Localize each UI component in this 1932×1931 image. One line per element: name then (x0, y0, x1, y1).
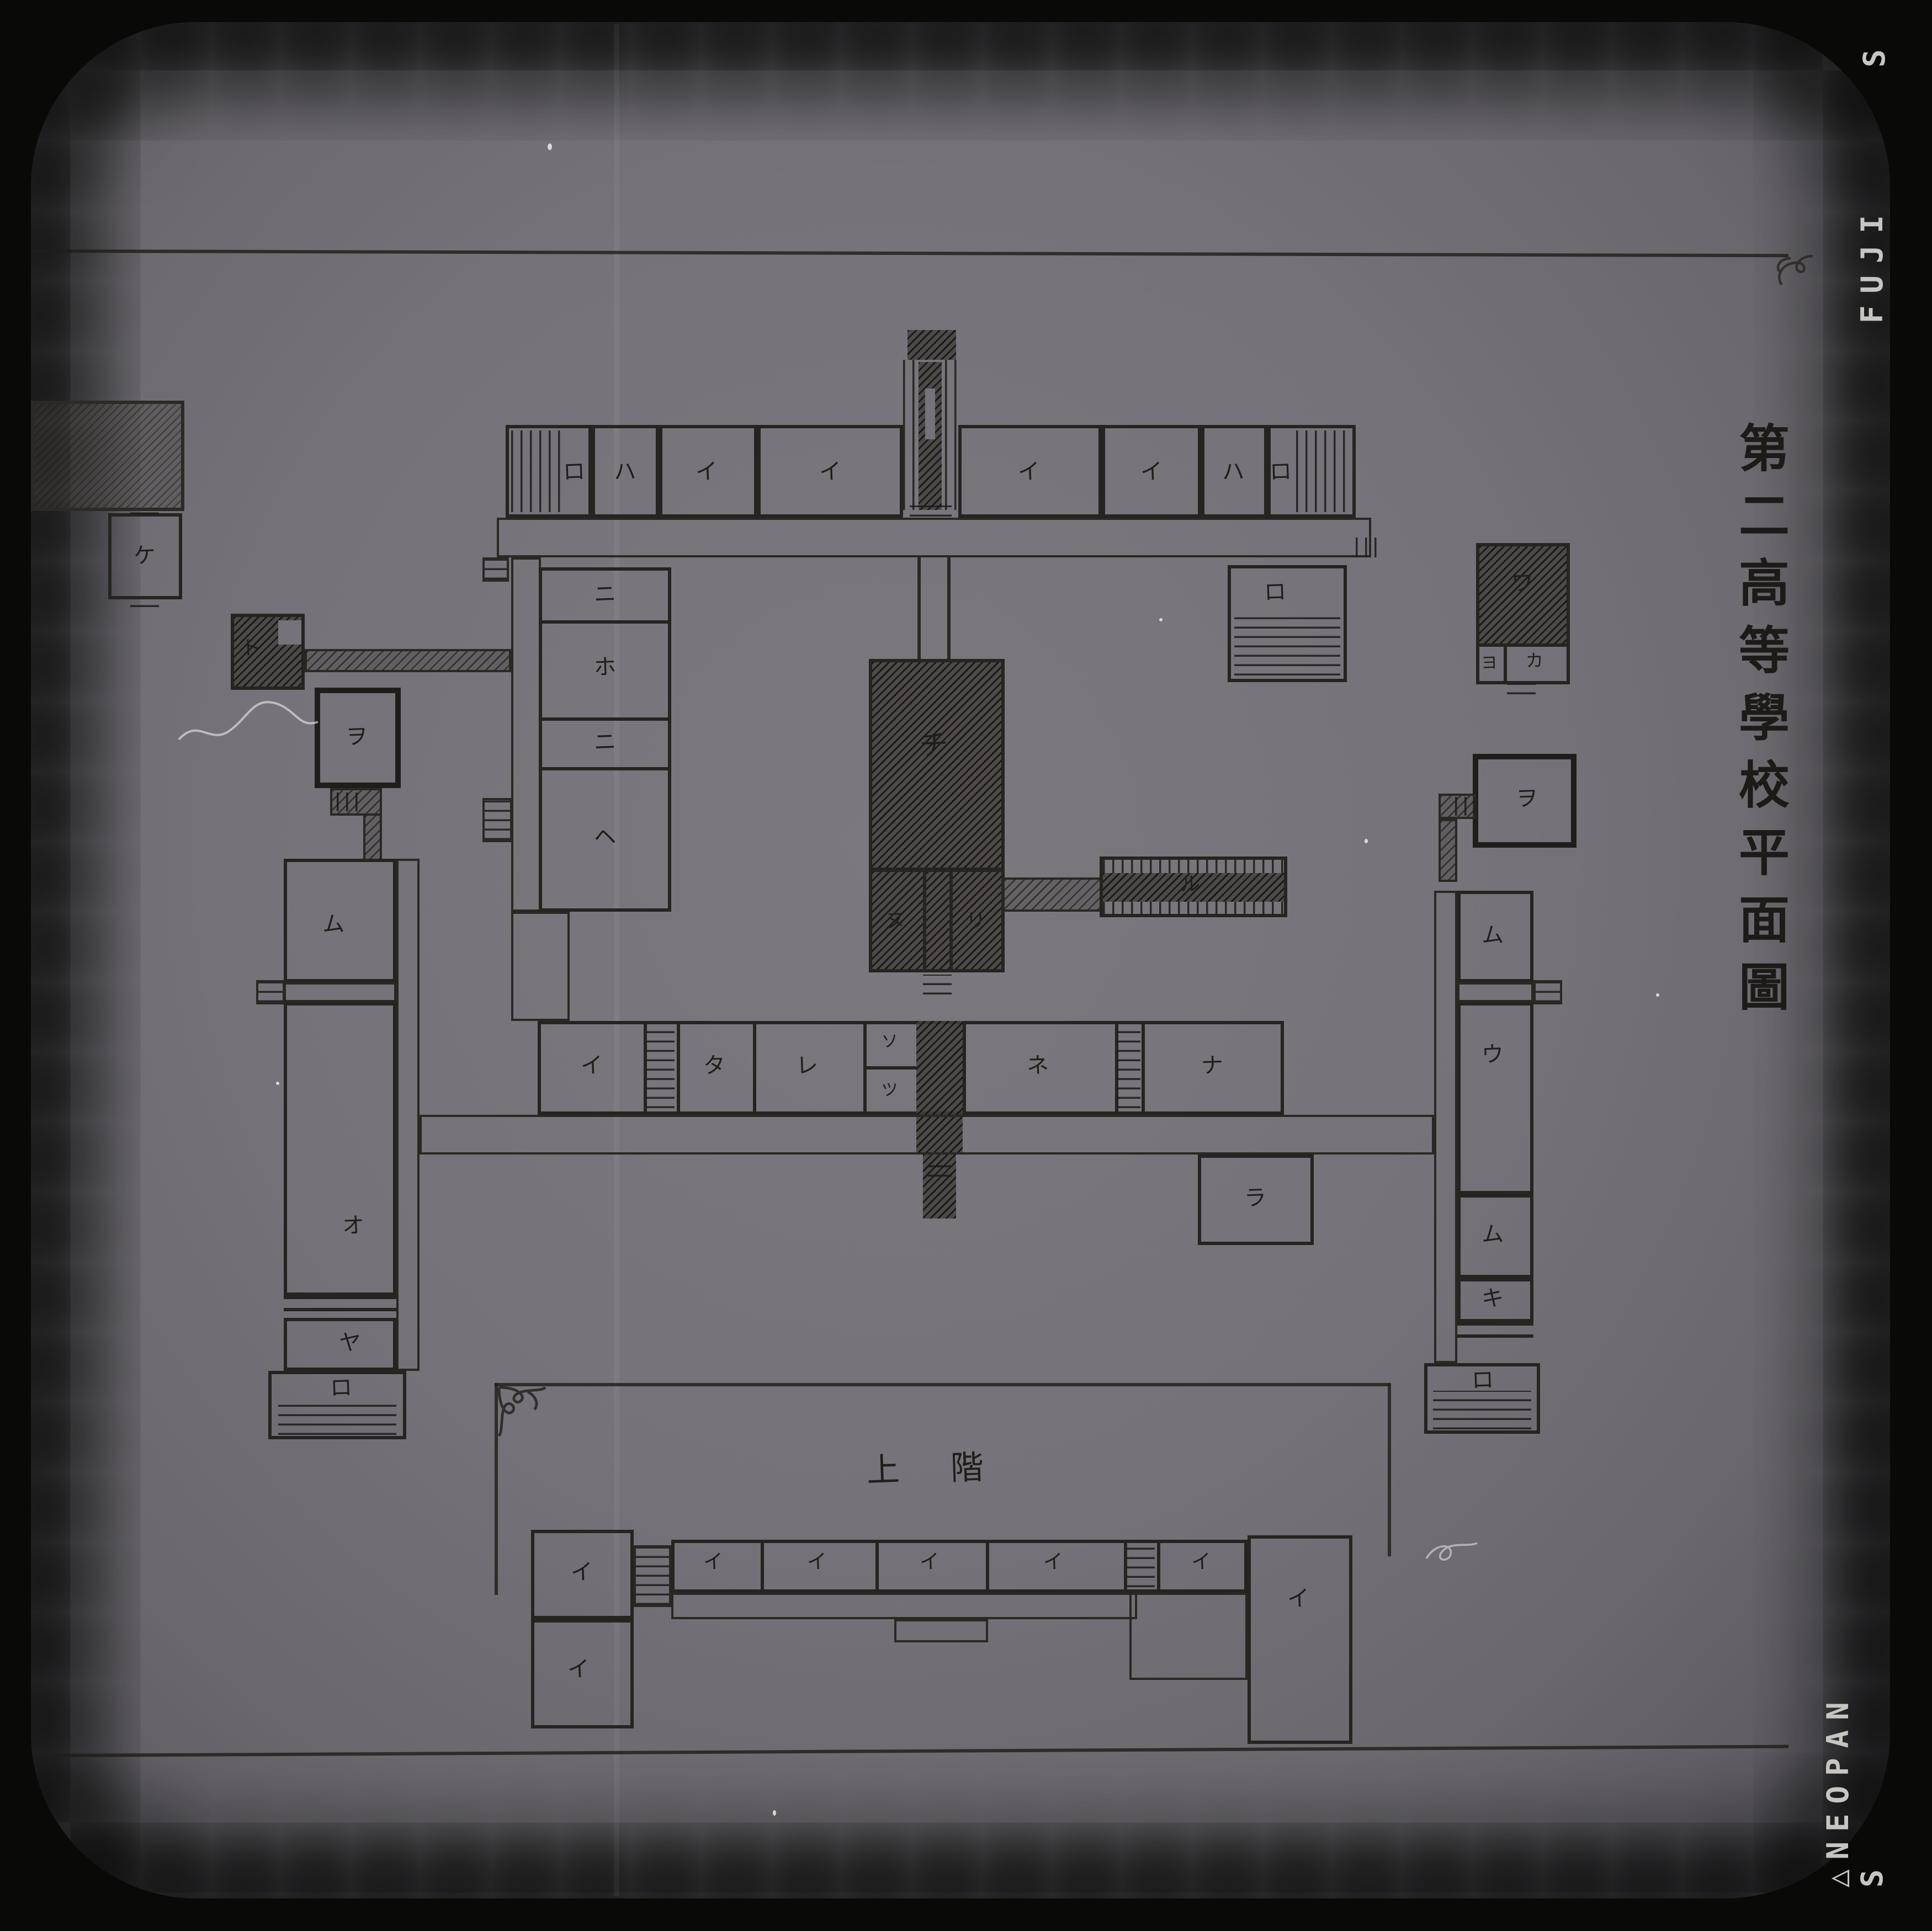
wall-ni-he (539, 767, 671, 770)
stairs-north-right (1356, 538, 1382, 557)
room-label: リ (965, 911, 986, 932)
band-east-2 (1457, 1334, 1533, 1338)
ornament-bottom-box-corner (497, 1385, 565, 1458)
band-west-2 (284, 1308, 396, 1311)
film-stock-text: △NEOPAN S (1822, 1692, 1890, 1887)
corridor-cross-east (1457, 982, 1533, 1002)
corridor-south (671, 1593, 1137, 1619)
wall-south-3 (986, 1540, 989, 1593)
room-label: イ (1043, 1552, 1063, 1573)
room-label: ワ (1511, 571, 1533, 594)
corridor-west-wing (396, 859, 420, 1371)
rooms-south-row (671, 1540, 1248, 1593)
wall-so-tsu (863, 1066, 916, 1070)
connector-wo-west-b (363, 813, 382, 861)
room-label: ハ (1222, 460, 1244, 482)
room-label: チ (919, 731, 949, 761)
stairs-cross-west (256, 980, 285, 1004)
corridor-west-column-lower (511, 912, 570, 1021)
room-label: ロ (330, 1376, 352, 1398)
steps-wo-west (337, 792, 361, 811)
porch-south (894, 1619, 988, 1642)
room-label: オ (342, 1214, 364, 1236)
room-label: レ (795, 1054, 818, 1076)
wall-nu-mid (923, 869, 926, 972)
stairs-west-column (482, 798, 512, 842)
room-label: ヌ (885, 911, 905, 932)
stairs-stripes-northeast-end (1296, 430, 1349, 512)
room-label: ヲ (345, 725, 368, 747)
corridor-middle (420, 1115, 1434, 1155)
room-label: ル (1180, 875, 1200, 895)
wall-mid-5 (963, 1021, 966, 1115)
room-label: イ (703, 1552, 723, 1573)
corridor-west-column (511, 557, 541, 912)
room-label: ロ (1471, 1368, 1494, 1391)
ru-window-band-top (1103, 860, 1284, 873)
room-label: ト (240, 639, 261, 659)
room-label: ハ (613, 460, 636, 482)
room-label: ム (1481, 1222, 1504, 1245)
wall-yo-ka (1504, 643, 1507, 684)
steps-chi-south (923, 975, 952, 994)
room-label: イ (1287, 1587, 1309, 1609)
entrance-side-right (945, 360, 957, 510)
room-o-west (284, 1002, 396, 1296)
wall-south-2 (875, 1540, 879, 1593)
wall-mid-3 (753, 1021, 756, 1115)
room-label: ホ (593, 655, 616, 678)
corridor-south-jog (1129, 1593, 1248, 1680)
wall-mid-ri (949, 869, 953, 972)
band-west-1 (284, 1296, 396, 1299)
ornament-top-right (1764, 254, 1815, 291)
wall-wa-row (1476, 643, 1570, 647)
room-label: ム (1481, 923, 1504, 946)
room-label: ヘ (593, 825, 616, 848)
wall-mid-7 (1142, 1021, 1145, 1115)
room-label: ヨ (1480, 655, 1498, 672)
steps-porch-middle (927, 1159, 952, 1177)
room-label: ム (322, 912, 344, 935)
room-label: ラ (1244, 1186, 1266, 1209)
room-label: ニ (593, 582, 616, 605)
room-label: カ (1525, 652, 1543, 670)
corridor-east-wing (1434, 891, 1457, 1363)
room-label: イ (1191, 1552, 1211, 1573)
scratch-thread (177, 684, 320, 762)
film-negative-photo: ロハイイイイハロニホニヘケトロワヨカチヌリルイタレソツネナラヲムオヤロヲムウムキ… (0, 0, 1932, 1931)
room-label: イ (1140, 460, 1163, 482)
stairs-south-mid (1127, 1545, 1155, 1587)
dust-speck (548, 143, 552, 150)
dust-speck (1159, 618, 1163, 621)
rule-south-box-right (1388, 1383, 1390, 1556)
walkway-wall-left (917, 557, 921, 659)
stairs-stripes-northwest-end (511, 430, 562, 512)
entrance-side-left (903, 360, 915, 510)
hall-chi (869, 659, 1005, 871)
room-label: キ (1481, 1286, 1504, 1309)
room-label: イ (819, 460, 841, 482)
room-label: ツ (881, 1082, 898, 1099)
wall-south-5 (1157, 1540, 1160, 1593)
steps-wo-east (1455, 797, 1475, 816)
room-label: ソ (881, 1033, 898, 1050)
film-edge-partial-s: S (1858, 37, 1892, 67)
room-label: イ (570, 1560, 593, 1583)
stairs-middle-west (647, 1029, 675, 1108)
band-east-1 (1457, 1322, 1533, 1326)
veranda-ro-southeast (1433, 1391, 1531, 1429)
plan-title: 第二高等學校平面圖 (1724, 422, 1797, 1028)
room-label: ロ (1264, 580, 1286, 603)
room-label: タ (703, 1054, 725, 1076)
ru-window-band-bottom (1103, 902, 1284, 914)
room-label: ロ (562, 460, 585, 482)
room-label: イ (580, 1054, 603, 1076)
room-label: イ (919, 1552, 940, 1573)
scratch-curl (1424, 1536, 1479, 1570)
room-label: ヲ (1515, 786, 1538, 809)
wall-mid-2 (677, 1021, 680, 1115)
corridor-north (497, 518, 1371, 557)
wall-south-1 (761, 1540, 764, 1593)
room-label: ナ (1201, 1054, 1223, 1076)
court-to (278, 620, 301, 645)
steps-wa (1507, 684, 1536, 694)
room-label: ネ (1026, 1054, 1049, 1076)
walkway-wall-right (947, 557, 951, 659)
entrance-slot (925, 389, 935, 439)
corridor-ru (1002, 877, 1102, 912)
stairs-cross-east (1533, 980, 1562, 1004)
stairs-middle-east (1117, 1029, 1140, 1108)
film-maker-text: FUJI (1856, 203, 1890, 323)
rule-south-box-top (495, 1383, 1390, 1386)
room-label: ケ (133, 544, 156, 566)
room-label: イ (695, 460, 718, 482)
room-label: ヤ (338, 1331, 361, 1353)
room-label: イ (806, 1552, 827, 1573)
stairs-north-left (482, 557, 509, 582)
connector-wo-east-b (1439, 819, 1457, 882)
wall-ho-ni (539, 717, 671, 721)
room-label: 上 (866, 1454, 900, 1488)
veranda-ro-southwest (278, 1400, 396, 1435)
room-label: ロ (1269, 460, 1292, 482)
dust-speck (276, 1082, 279, 1085)
corridor-cross-west (284, 982, 396, 1002)
room-label: 階 (950, 1452, 984, 1486)
room-label: イ (1017, 460, 1040, 482)
rule-south-box-left (495, 1383, 497, 1595)
wall-ni-ho (539, 620, 671, 624)
stairs-south-west (634, 1545, 671, 1607)
corridor-to (305, 649, 511, 672)
veranda-ro-hanging (1234, 614, 1340, 675)
room-label: イ (567, 1657, 590, 1680)
room-label: ニ (593, 730, 616, 753)
dust-speck (1365, 839, 1368, 843)
room-u-east (1457, 1002, 1533, 1194)
steps-ke-bottom (130, 598, 159, 607)
entrance-steps (910, 506, 952, 517)
dust-speck (773, 1810, 776, 1816)
entrance-tower (907, 330, 956, 360)
room-label: ウ (1481, 1042, 1504, 1065)
room-i-se-large (1248, 1535, 1352, 1744)
dust-speck (1656, 993, 1659, 997)
building-northwest-shed (31, 401, 184, 511)
